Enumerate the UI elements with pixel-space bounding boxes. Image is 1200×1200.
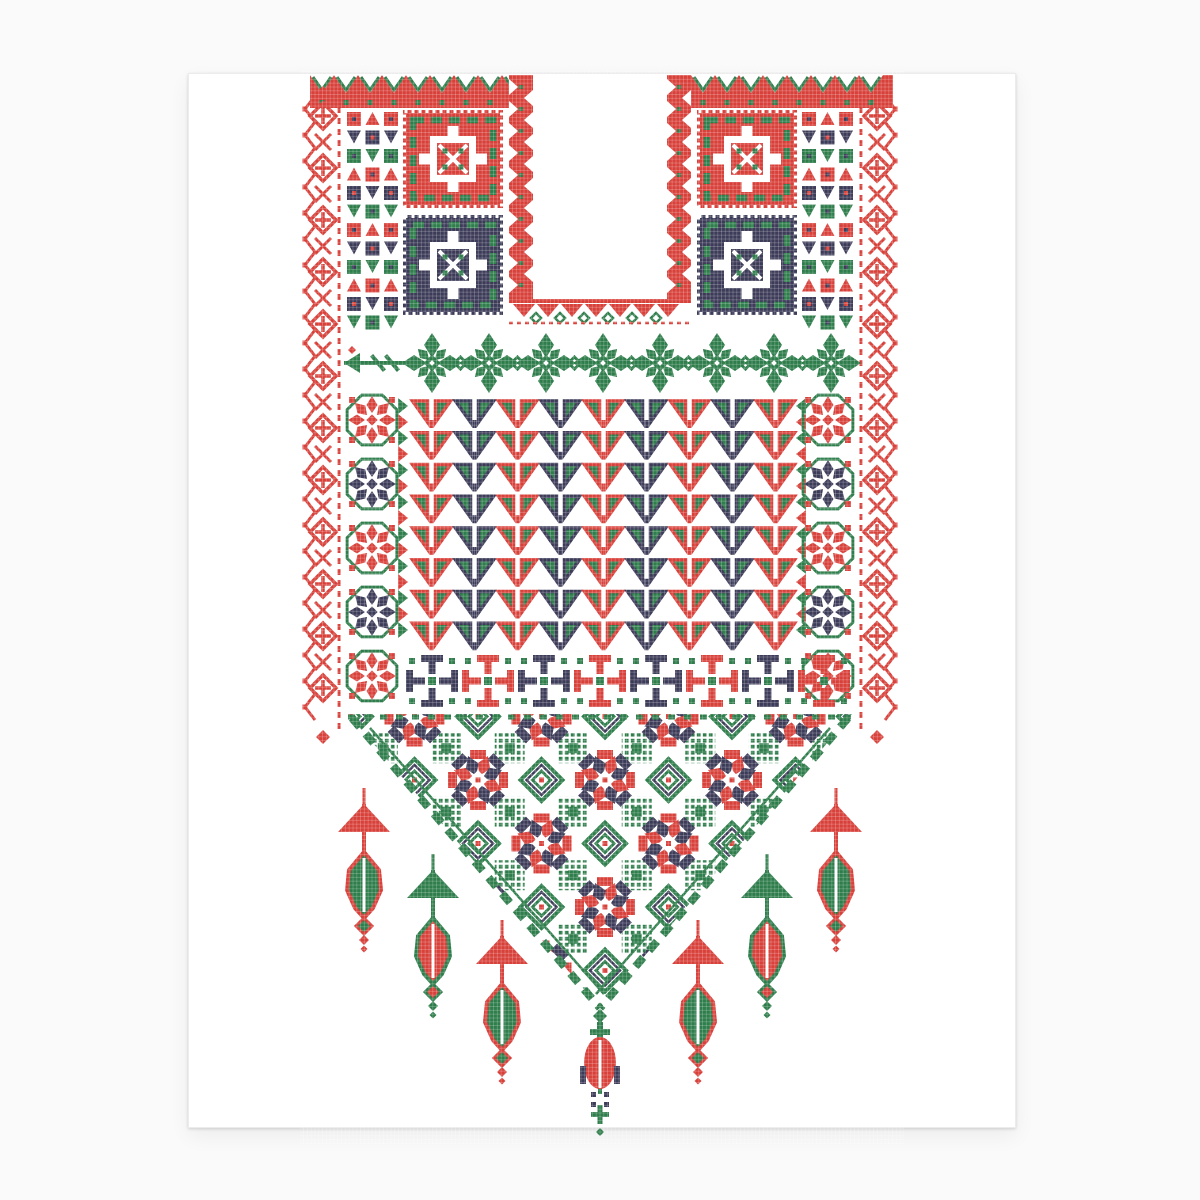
poster-page bbox=[188, 73, 1016, 1128]
print-preview-stage bbox=[0, 0, 1200, 1200]
